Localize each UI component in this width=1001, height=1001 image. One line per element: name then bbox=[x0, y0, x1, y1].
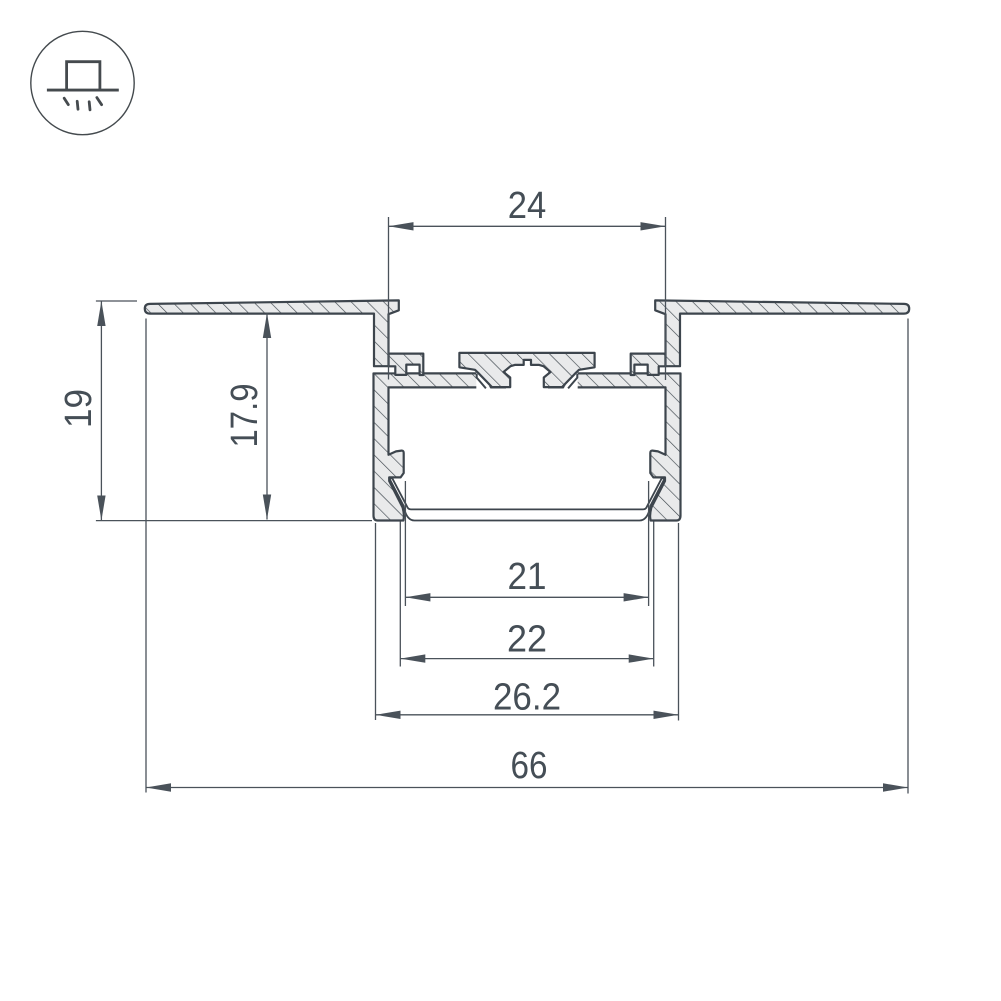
svg-text:22: 22 bbox=[507, 618, 547, 660]
svg-text:66: 66 bbox=[511, 745, 548, 787]
svg-text:24: 24 bbox=[508, 185, 547, 227]
svg-text:19: 19 bbox=[58, 389, 100, 428]
svg-text:26.2: 26.2 bbox=[493, 676, 561, 718]
svg-text:17.9: 17.9 bbox=[224, 384, 266, 448]
svg-text:21: 21 bbox=[508, 556, 547, 598]
